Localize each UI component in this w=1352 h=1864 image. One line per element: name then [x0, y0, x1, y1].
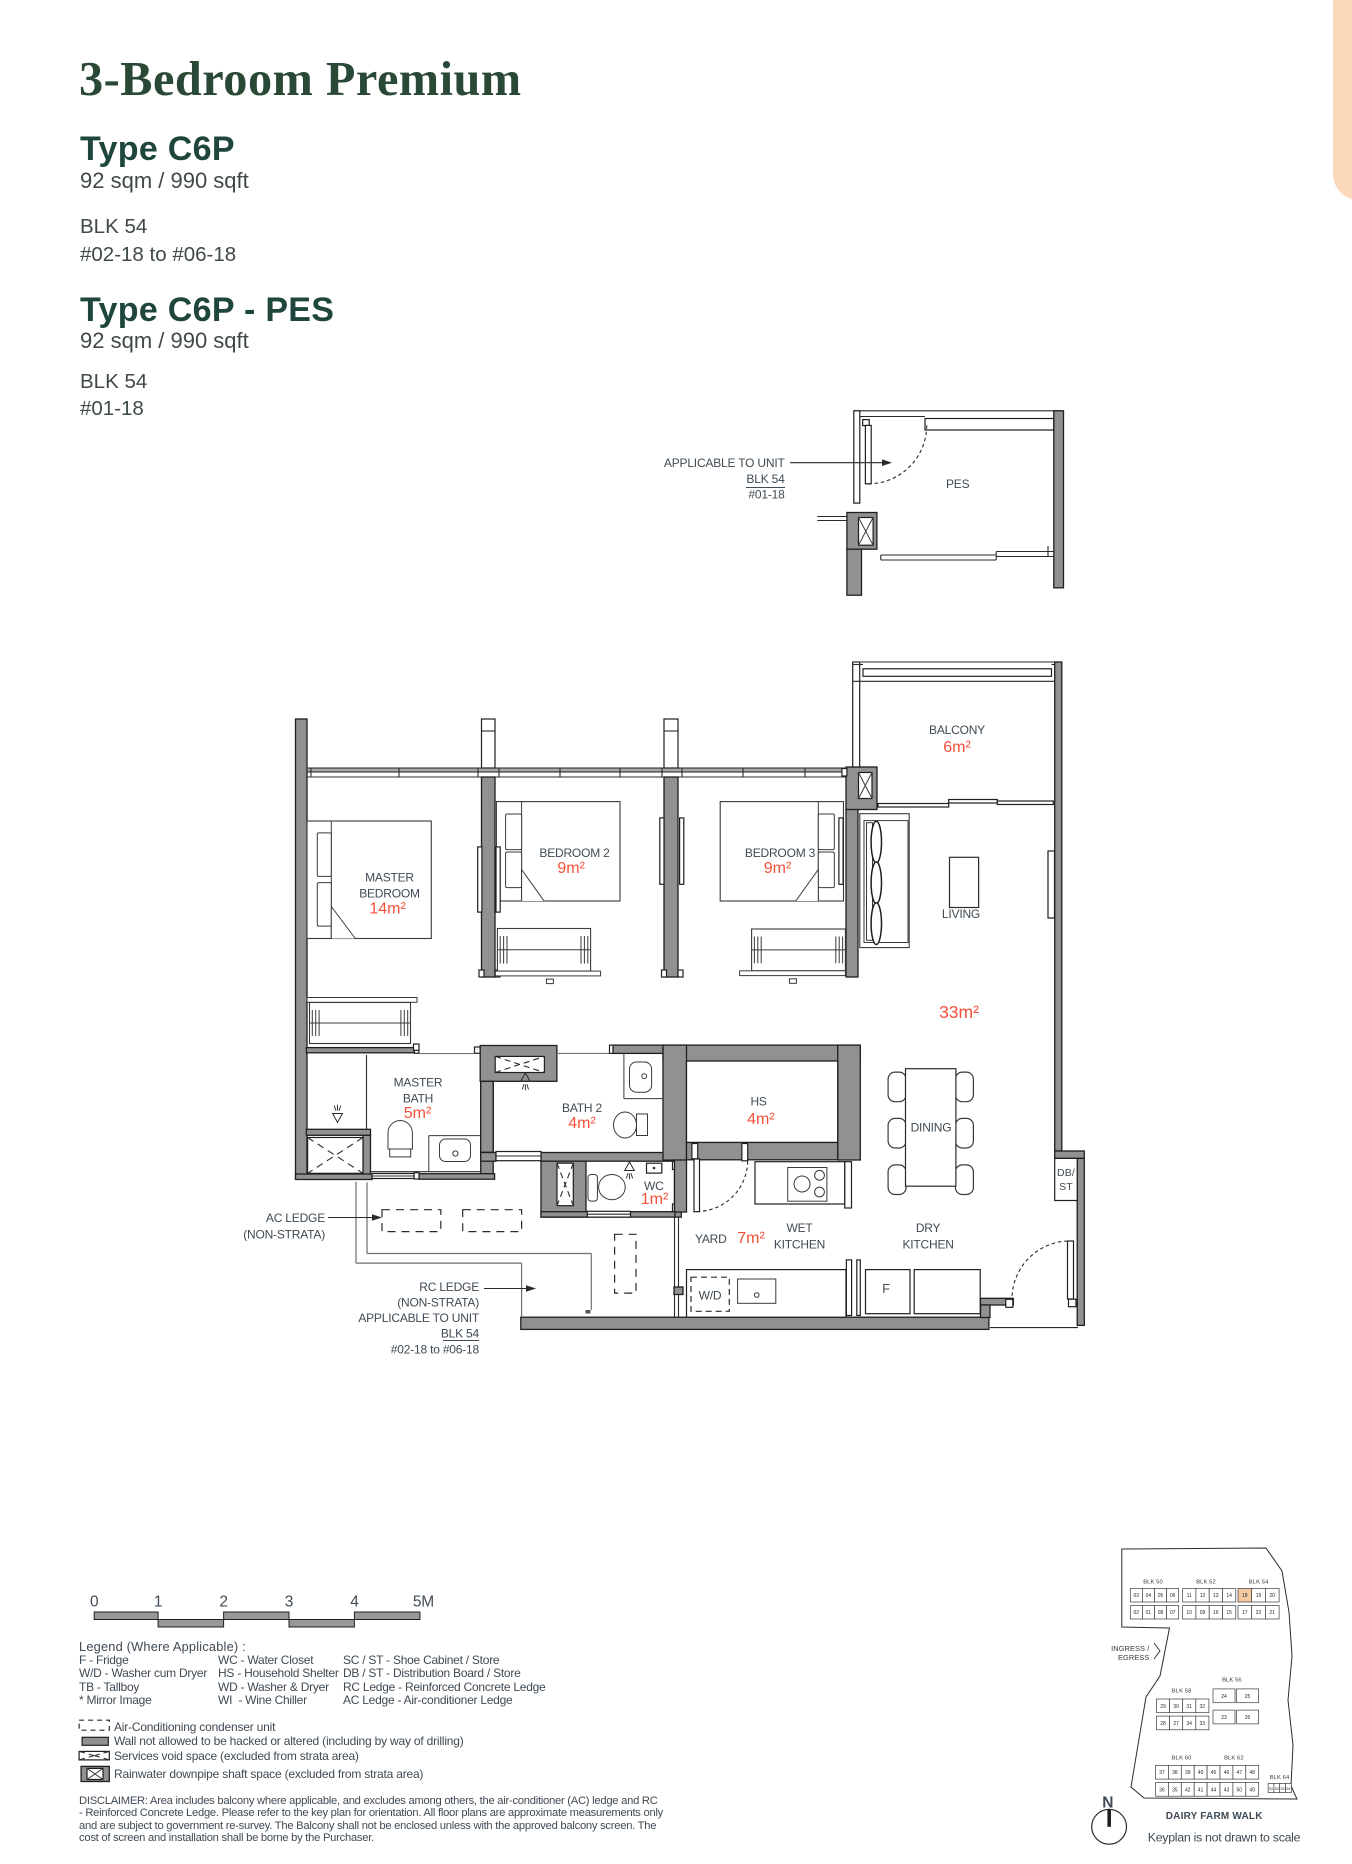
svg-text:BLK 52: BLK 52 — [1196, 1580, 1216, 1586]
svg-text:40: 40 — [1198, 1770, 1204, 1776]
svg-text:33m²: 33m² — [939, 1002, 979, 1022]
svg-text:N: N — [1102, 1795, 1113, 1812]
svg-text:37: 37 — [1159, 1770, 1165, 1776]
svg-text:35: 35 — [1172, 1787, 1178, 1793]
svg-text:BATH: BATH — [403, 1092, 433, 1106]
svg-text:24: 24 — [1221, 1694, 1227, 1700]
svg-text:14: 14 — [1226, 1593, 1232, 1599]
svg-text:BLK 54: BLK 54 — [746, 472, 785, 486]
svg-text:41: 41 — [1198, 1787, 1204, 1793]
svg-text:26: 26 — [1245, 1715, 1251, 1721]
svg-text:53: 53 — [1281, 1787, 1285, 1791]
svg-text:F: F — [882, 1282, 890, 1296]
svg-text:18: 18 — [1242, 1593, 1248, 1599]
svg-text:4: 4 — [350, 1594, 359, 1611]
svg-text:DB/: DB/ — [1057, 1167, 1075, 1179]
svg-text:1m²: 1m² — [641, 1191, 669, 1208]
svg-text:7m²: 7m² — [737, 1230, 765, 1247]
svg-text:42: 42 — [1185, 1787, 1191, 1793]
svg-text:43: 43 — [1224, 1787, 1230, 1793]
svg-text:BLK 58: BLK 58 — [1172, 1689, 1192, 1695]
svg-text:DAIRY FARM WALK: DAIRY FARM WALK — [1166, 1811, 1263, 1822]
svg-text:ST: ST — [1059, 1181, 1073, 1193]
svg-text:DRY: DRY — [916, 1221, 941, 1235]
svg-text:EGRESS: EGRESS — [1118, 1653, 1149, 1662]
svg-text:07: 07 — [1170, 1610, 1176, 1616]
svg-text:38: 38 — [1172, 1770, 1178, 1776]
svg-text:16: 16 — [1213, 1610, 1219, 1616]
svg-text:44: 44 — [1211, 1787, 1217, 1793]
svg-text:46: 46 — [1224, 1770, 1230, 1776]
svg-text:10: 10 — [1186, 1610, 1192, 1616]
svg-text:BLK 64: BLK 64 — [1270, 1775, 1290, 1781]
svg-text:01: 01 — [1146, 1610, 1152, 1616]
svg-text:15: 15 — [1226, 1610, 1232, 1616]
svg-text:9m²: 9m² — [764, 860, 792, 877]
svg-text:2: 2 — [219, 1594, 227, 1611]
svg-text:32: 32 — [1200, 1704, 1206, 1710]
svg-text:MASTER: MASTER — [394, 1076, 443, 1090]
svg-text:51: 51 — [1269, 1787, 1273, 1791]
svg-text:48: 48 — [1249, 1770, 1255, 1776]
svg-text:25: 25 — [1245, 1694, 1251, 1700]
svg-text:02: 02 — [1134, 1610, 1140, 1616]
svg-text:BATH 2: BATH 2 — [562, 1101, 602, 1115]
svg-text:09: 09 — [1200, 1610, 1206, 1616]
svg-text:KITCHEN: KITCHEN — [774, 1238, 825, 1252]
svg-text:9m²: 9m² — [557, 860, 585, 877]
svg-text:29: 29 — [1160, 1704, 1166, 1710]
svg-text:3: 3 — [285, 1594, 293, 1611]
svg-text:33: 33 — [1200, 1721, 1206, 1727]
svg-text:BEDROOM 3: BEDROOM 3 — [745, 846, 816, 860]
svg-text:17: 17 — [1242, 1610, 1248, 1616]
svg-text:(NON-STRATA): (NON-STRATA) — [243, 1227, 325, 1241]
svg-text:36: 36 — [1159, 1787, 1165, 1793]
svg-text:28: 28 — [1160, 1721, 1166, 1727]
svg-text:BLK 54: BLK 54 — [1249, 1580, 1269, 1586]
svg-text:BLK 60: BLK 60 — [1172, 1756, 1192, 1762]
svg-text:DINING: DINING — [911, 1121, 952, 1135]
svg-text:20: 20 — [1269, 1593, 1275, 1599]
svg-text:BLK 54: BLK 54 — [441, 1327, 480, 1341]
svg-text:RC LEDGE: RC LEDGE — [419, 1280, 479, 1294]
svg-text:BEDROOM: BEDROOM — [359, 886, 420, 900]
svg-text:1: 1 — [154, 1594, 162, 1611]
svg-text:LIVING: LIVING — [942, 907, 980, 921]
svg-text:#01-18: #01-18 — [748, 488, 785, 502]
svg-text:21: 21 — [1269, 1610, 1275, 1616]
svg-text:23: 23 — [1221, 1715, 1227, 1721]
svg-text:12: 12 — [1200, 1593, 1206, 1599]
svg-text:AC LEDGE: AC LEDGE — [266, 1211, 325, 1225]
svg-text:Keyplan is not drawn to scale: Keyplan is not drawn to scale — [1148, 1831, 1301, 1845]
svg-text:(NON-STRATA): (NON-STRATA) — [397, 1296, 479, 1310]
svg-text:4m²: 4m² — [568, 1115, 596, 1132]
svg-text:4m²: 4m² — [747, 1111, 775, 1128]
svg-text:#02-18 to #06-18: #02-18 to #06-18 — [391, 1343, 480, 1357]
svg-text:19: 19 — [1256, 1593, 1262, 1599]
svg-text:52: 52 — [1275, 1787, 1279, 1791]
svg-text:5M: 5M — [413, 1594, 434, 1611]
svg-text:11: 11 — [1187, 1593, 1192, 1599]
svg-text:34: 34 — [1186, 1721, 1192, 1727]
svg-text:WET: WET — [786, 1221, 813, 1235]
svg-text:08: 08 — [1158, 1610, 1164, 1616]
svg-text:PES: PES — [946, 477, 970, 491]
svg-text:APPLICABLE TO UNIT: APPLICABLE TO UNIT — [358, 1311, 480, 1325]
svg-text:W/D: W/D — [699, 1289, 722, 1303]
svg-text:BLK 56: BLK 56 — [1222, 1678, 1242, 1684]
svg-text:50: 50 — [1237, 1787, 1243, 1793]
svg-text:04: 04 — [1146, 1593, 1152, 1599]
svg-text:BLK 50: BLK 50 — [1143, 1580, 1163, 1586]
svg-text:27: 27 — [1173, 1721, 1179, 1727]
svg-text:49: 49 — [1249, 1787, 1255, 1793]
svg-text:APPLICABLE TO UNIT: APPLICABLE TO UNIT — [664, 456, 786, 470]
svg-text:0: 0 — [90, 1594, 99, 1611]
svg-text:KITCHEN: KITCHEN — [902, 1238, 953, 1252]
svg-text:BALCONY: BALCONY — [929, 723, 985, 737]
svg-text:BLK 62: BLK 62 — [1224, 1756, 1244, 1762]
svg-text:03: 03 — [1134, 1593, 1140, 1599]
svg-text:54: 54 — [1286, 1787, 1290, 1791]
svg-text:13: 13 — [1213, 1593, 1219, 1599]
svg-text:5m²: 5m² — [404, 1105, 432, 1122]
svg-text:39: 39 — [1185, 1770, 1191, 1776]
svg-text:31: 31 — [1186, 1704, 1192, 1710]
svg-text:INGRESS /: INGRESS / — [1111, 1644, 1150, 1653]
svg-text:45: 45 — [1211, 1770, 1217, 1776]
svg-text:47: 47 — [1237, 1770, 1243, 1776]
svg-text:6m²: 6m² — [943, 739, 971, 756]
svg-text:BEDROOM 2: BEDROOM 2 — [539, 846, 610, 860]
svg-text:30: 30 — [1173, 1704, 1179, 1710]
svg-text:MASTER: MASTER — [365, 871, 414, 885]
svg-text:YARD: YARD — [695, 1232, 727, 1246]
svg-text:14m²: 14m² — [369, 901, 406, 918]
svg-text:HS: HS — [750, 1095, 766, 1109]
svg-text:05: 05 — [1158, 1593, 1164, 1599]
svg-text:22: 22 — [1256, 1610, 1262, 1616]
svg-text:06: 06 — [1170, 1593, 1176, 1599]
